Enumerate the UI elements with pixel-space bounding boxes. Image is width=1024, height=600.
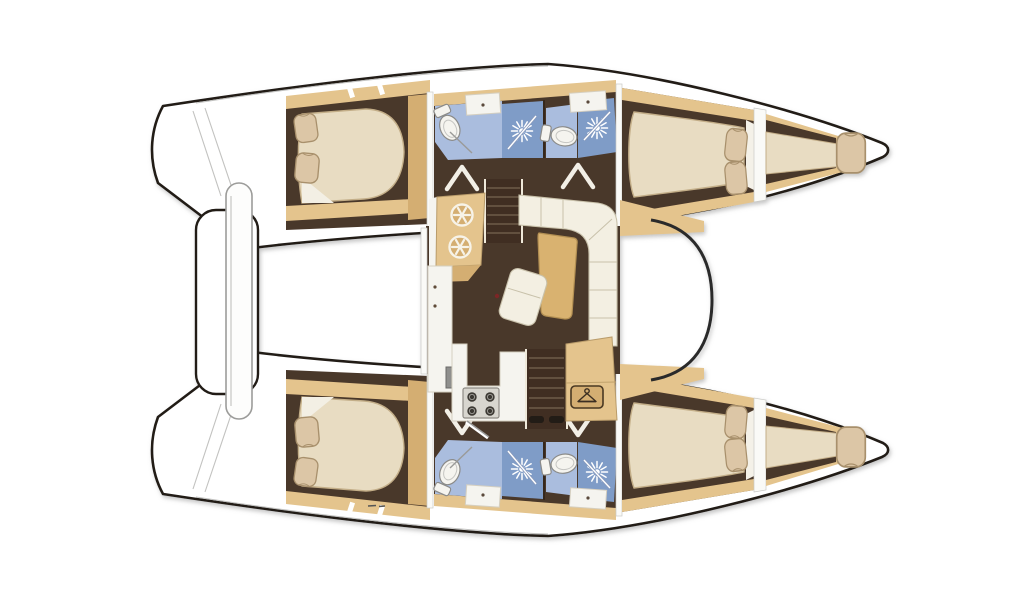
companionway-steps-starboard [526, 349, 567, 429]
aft-cabin [286, 80, 430, 230]
pillow [294, 152, 320, 183]
stove-burner [467, 406, 476, 415]
forward-cabin [622, 88, 758, 226]
forward-windshield [651, 220, 712, 380]
pillow [724, 128, 748, 162]
dining-table [538, 233, 577, 319]
pillow [293, 113, 319, 144]
pillow [724, 161, 748, 195]
catamaran-floor-plan [0, 0, 1024, 600]
basin-drain [481, 103, 484, 106]
galley-sink [452, 205, 473, 226]
aft-bench [226, 183, 252, 419]
step-handle [529, 416, 544, 423]
boat [152, 64, 888, 536]
floor-fitting [495, 294, 499, 298]
floor-plan-page [0, 0, 1024, 600]
bulkhead [754, 108, 766, 202]
galley-sink [450, 237, 471, 258]
step-handle [549, 416, 564, 423]
companionway-steps-port [485, 179, 522, 243]
stove-burner [485, 406, 494, 415]
hanging-locker [566, 337, 617, 421]
pillow [837, 133, 866, 173]
stove-burner [485, 392, 494, 401]
counter-fitting [433, 304, 436, 307]
basin-drain [586, 100, 589, 103]
stove-burner [467, 392, 476, 401]
counter-fitting [433, 285, 436, 288]
saloon-left-wall [421, 228, 427, 374]
